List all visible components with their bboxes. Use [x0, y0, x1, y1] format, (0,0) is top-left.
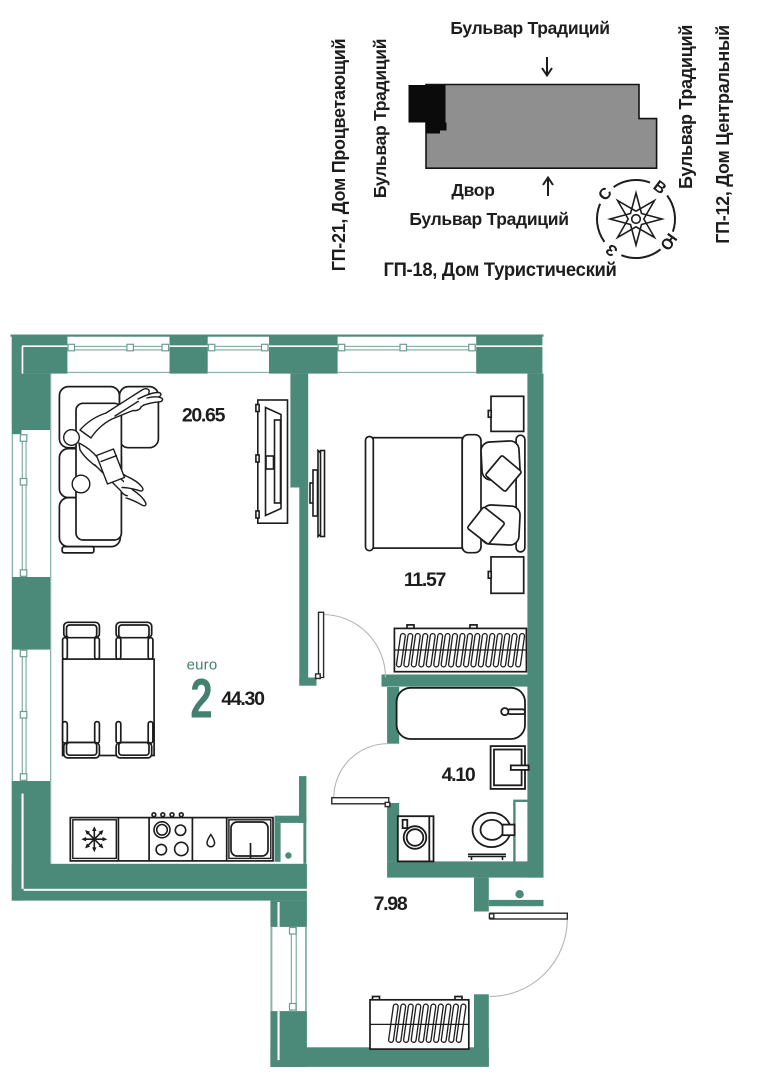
svg-text:4.10: 4.10 [442, 764, 476, 786]
svg-text:Бульвар Традиций: Бульвар Традиций [409, 209, 568, 229]
svg-text:С: С [595, 184, 616, 204]
svg-text:В: В [650, 178, 669, 199]
svg-text:Бульвар Традиций: Бульвар Традиций [450, 18, 609, 38]
svg-text:З: З [603, 240, 621, 260]
svg-text:Двор: Двор [451, 180, 494, 200]
svg-text:ГП-21, Дом Процветающий: ГП-21, Дом Процветающий [329, 39, 349, 272]
svg-text:ГП-18, Дом Туристический: ГП-18, Дом Туристический [383, 259, 616, 280]
svg-text:44.30: 44.30 [221, 688, 265, 710]
svg-text:11.57: 11.57 [404, 569, 446, 591]
svg-text:Бульвар Традиций: Бульвар Традиций [370, 39, 390, 198]
svg-text:ГП-12, Дом Центральный: ГП-12, Дом Центральный [713, 25, 733, 244]
svg-text:Бульвар Традиций: Бульвар Традиций [676, 25, 696, 189]
svg-text:20.65: 20.65 [182, 405, 226, 427]
svg-text:2: 2 [190, 668, 212, 730]
svg-text:7.98: 7.98 [374, 893, 408, 915]
